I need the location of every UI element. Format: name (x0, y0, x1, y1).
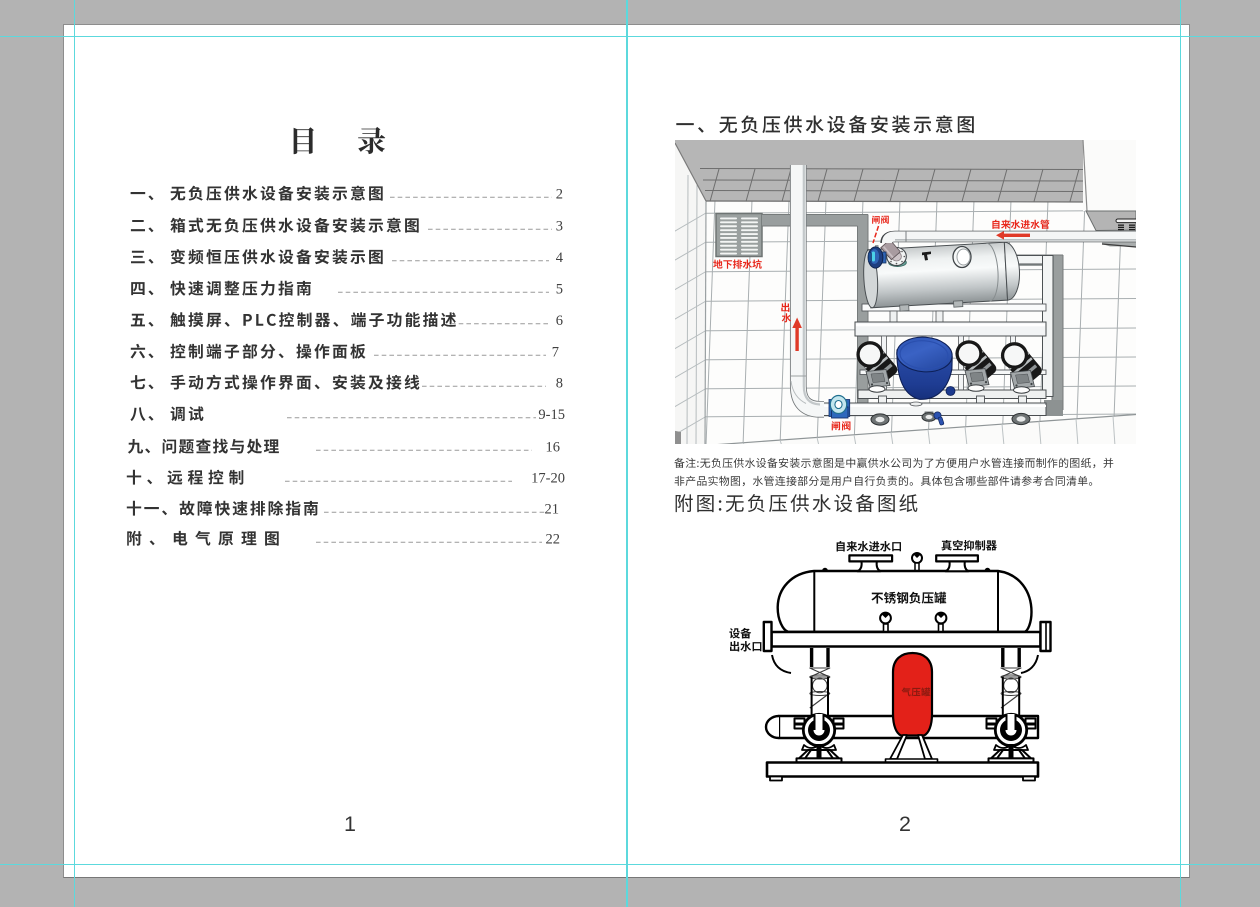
svg-text:21: 21 (545, 502, 560, 518)
svg-text:5: 5 (556, 282, 563, 298)
svg-text:1: 1 (344, 812, 356, 836)
svg-text:3: 3 (556, 219, 563, 235)
svg-text:17-20: 17-20 (531, 471, 565, 487)
svg-text:9-15: 9-15 (538, 407, 565, 423)
svg-text:2: 2 (556, 187, 563, 203)
svg-text:4: 4 (556, 250, 564, 266)
svg-text:6: 6 (556, 313, 563, 329)
svg-text:16: 16 (546, 440, 561, 456)
svg-text:8: 8 (556, 376, 563, 392)
svg-text:7: 7 (552, 345, 559, 361)
svg-text:2: 2 (899, 812, 911, 836)
svg-text:22: 22 (546, 532, 561, 548)
